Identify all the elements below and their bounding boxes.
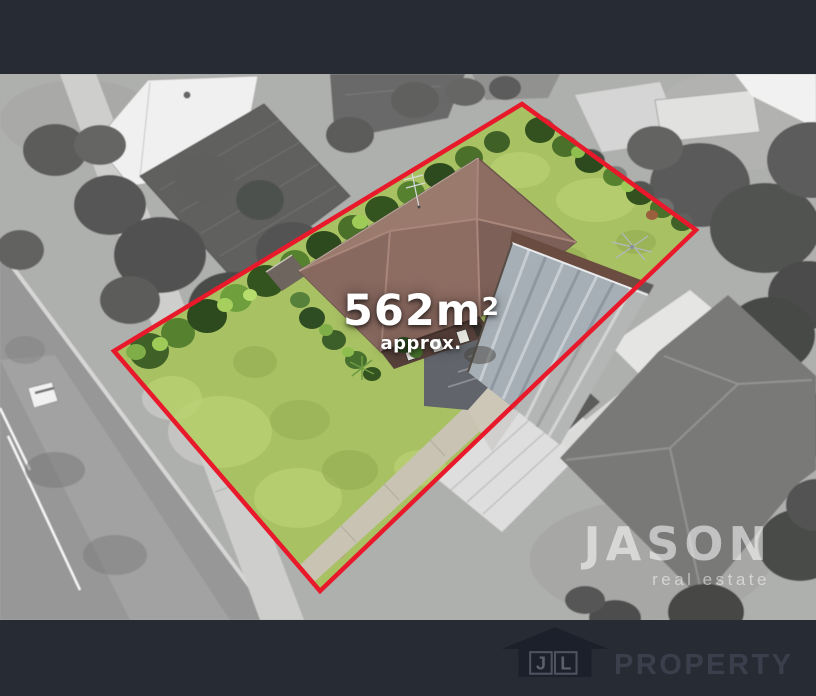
jl-property-logo: J L PROPERTY <box>502 623 812 689</box>
monogram-letter-j: J <box>536 654 546 674</box>
agency-tagline: real estate <box>553 571 770 588</box>
monogram-letter-l: L <box>560 654 571 674</box>
area-number: 562m <box>343 286 482 336</box>
house-icon: J L <box>502 623 608 683</box>
land-area-label: 562m2 approx. <box>305 290 537 354</box>
listing-photo-frame: 562m2 approx. JASON real estate J L PROP… <box>0 0 816 696</box>
house-icon-roof <box>502 627 608 649</box>
letterbox-top <box>0 0 816 74</box>
area-value: 562m2 <box>305 290 537 333</box>
agency-name: JASON <box>553 521 772 567</box>
area-qualifier: approx. <box>305 334 537 354</box>
footer-brand-text: PROPERTY <box>614 649 794 682</box>
area-exponent: 2 <box>482 292 499 321</box>
agency-watermark: JASON real estate <box>553 521 767 588</box>
